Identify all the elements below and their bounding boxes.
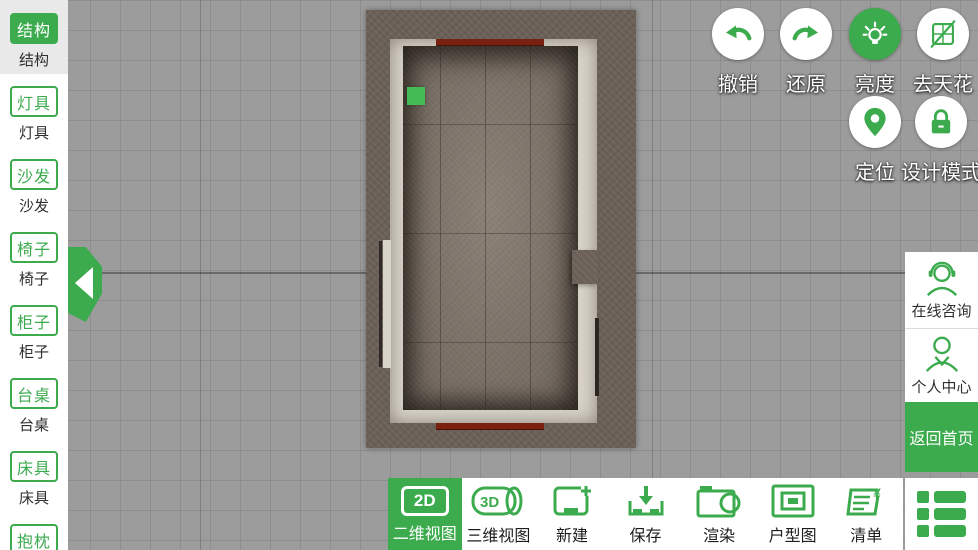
menu-panel-button[interactable] (905, 478, 978, 550)
lightbulb-icon (849, 8, 901, 60)
table-caption: 台桌 (19, 414, 49, 435)
door-leaf-left[interactable] (379, 241, 382, 367)
bottom-toolbar: 2D 二维视图 3D 三维视图 新建 保存 (388, 478, 903, 550)
chair-button[interactable]: 椅子 (10, 232, 58, 263)
2d-view-icon: 2D (401, 486, 449, 516)
cabinet-caption: 柜子 (19, 341, 49, 362)
list-menu-icon (917, 491, 966, 537)
new-file-icon (551, 484, 593, 518)
window-bottom[interactable] (436, 423, 544, 430)
svg-text:¥: ¥ (873, 485, 881, 501)
wall-pillar-right (572, 250, 598, 284)
sidebar-item-bed: 床具 床具 (0, 451, 68, 524)
undo-arrow-icon (712, 8, 764, 60)
svg-text:3D: 3D (480, 494, 499, 511)
grid-major-vertical-line (200, 0, 201, 550)
room-floor[interactable] (403, 46, 578, 410)
table-button[interactable]: 台桌 (10, 378, 58, 409)
sidebar-item-pillow: 抱枕 抱枕 (0, 524, 68, 550)
lock-icon (915, 96, 967, 148)
window-top[interactable] (436, 39, 544, 46)
undo-button[interactable]: 撤销 (708, 8, 768, 97)
new-button[interactable]: 新建 (535, 478, 609, 550)
category-sidebar: 结构 结构 灯具 灯具 沙发 沙发 椅子 椅子 柜子 柜子 台桌 台桌 床具 床… (0, 0, 68, 550)
lighting-caption: 灯具 (19, 122, 49, 143)
locate-button[interactable]: 定位 (845, 96, 905, 185)
bed-button[interactable]: 床具 (10, 451, 58, 482)
headset-person-icon (921, 259, 963, 297)
list-button[interactable]: ¥ 清单 (829, 478, 903, 550)
render-button[interactable]: 渲染 (682, 478, 756, 550)
personal-center-button[interactable]: 个人中心 (905, 329, 978, 402)
door-opening-left (383, 240, 391, 368)
remove-ceiling-button[interactable]: 去天花 (906, 8, 978, 97)
sidebar-item-table: 台桌 台桌 (0, 378, 68, 451)
chair-caption: 椅子 (19, 268, 49, 289)
map-pin-icon (849, 96, 901, 148)
floorplan-icon (770, 484, 816, 518)
selected-object-marker[interactable] (407, 87, 425, 105)
brightness-button[interactable]: 亮度 (845, 8, 905, 97)
save-icon (625, 484, 667, 518)
sofa-caption: 沙发 (19, 195, 49, 216)
online-service-button[interactable]: 在线咨询 (905, 252, 978, 328)
invoice-list-icon: ¥ (844, 484, 888, 518)
floor-tile-seam (485, 46, 486, 410)
floorplan-button[interactable]: 户型图 (756, 478, 830, 550)
sidebar-item-cabinet: 柜子 柜子 (0, 305, 68, 378)
right-sidebar: 在线咨询 个人中心 返回首页 (905, 252, 978, 550)
sidebar-item-lighting: 灯具 灯具 (0, 86, 68, 159)
floor-tile-seam (530, 46, 531, 410)
floor-tile-seam (403, 233, 578, 234)
structure-button[interactable]: 结构 (10, 13, 58, 44)
3d-view-icon: 3D (469, 484, 527, 518)
bed-caption: 床具 (19, 487, 49, 508)
sofa-button[interactable]: 沙发 (10, 159, 58, 190)
design-mode-button[interactable]: 设计模式 (898, 96, 978, 185)
save-button[interactable]: 保存 (609, 478, 683, 550)
redo-arrow-icon (780, 8, 832, 60)
person-icon (921, 335, 963, 373)
grid-major-vertical-line (652, 0, 653, 550)
door-leaf-right[interactable] (595, 318, 599, 396)
floor-tile-seam (403, 342, 578, 343)
cabinet-button[interactable]: 柜子 (10, 305, 58, 336)
ceiling-grid-icon (917, 8, 969, 60)
view-3d-tab[interactable]: 3D 三维视图 (462, 478, 536, 550)
sidebar-item-structure: 结构 结构 (0, 13, 68, 86)
sidebar-item-sofa: 沙发 沙发 (0, 159, 68, 232)
floor-tile-seam (403, 124, 578, 125)
view-2d-tab[interactable]: 2D 二维视图 (388, 478, 462, 550)
room-wall[interactable] (366, 10, 636, 448)
sidebar-item-chair: 椅子 椅子 (0, 232, 68, 305)
floor-tile-seam (440, 46, 441, 410)
chevron-left-icon (75, 267, 93, 299)
pillow-button[interactable]: 抱枕 (10, 524, 58, 550)
camera-icon (696, 484, 742, 518)
structure-caption: 结构 (19, 49, 49, 70)
redo-button[interactable]: 还原 (776, 8, 836, 97)
lighting-button[interactable]: 灯具 (10, 86, 58, 117)
back-home-button[interactable]: 返回首页 (905, 402, 978, 472)
